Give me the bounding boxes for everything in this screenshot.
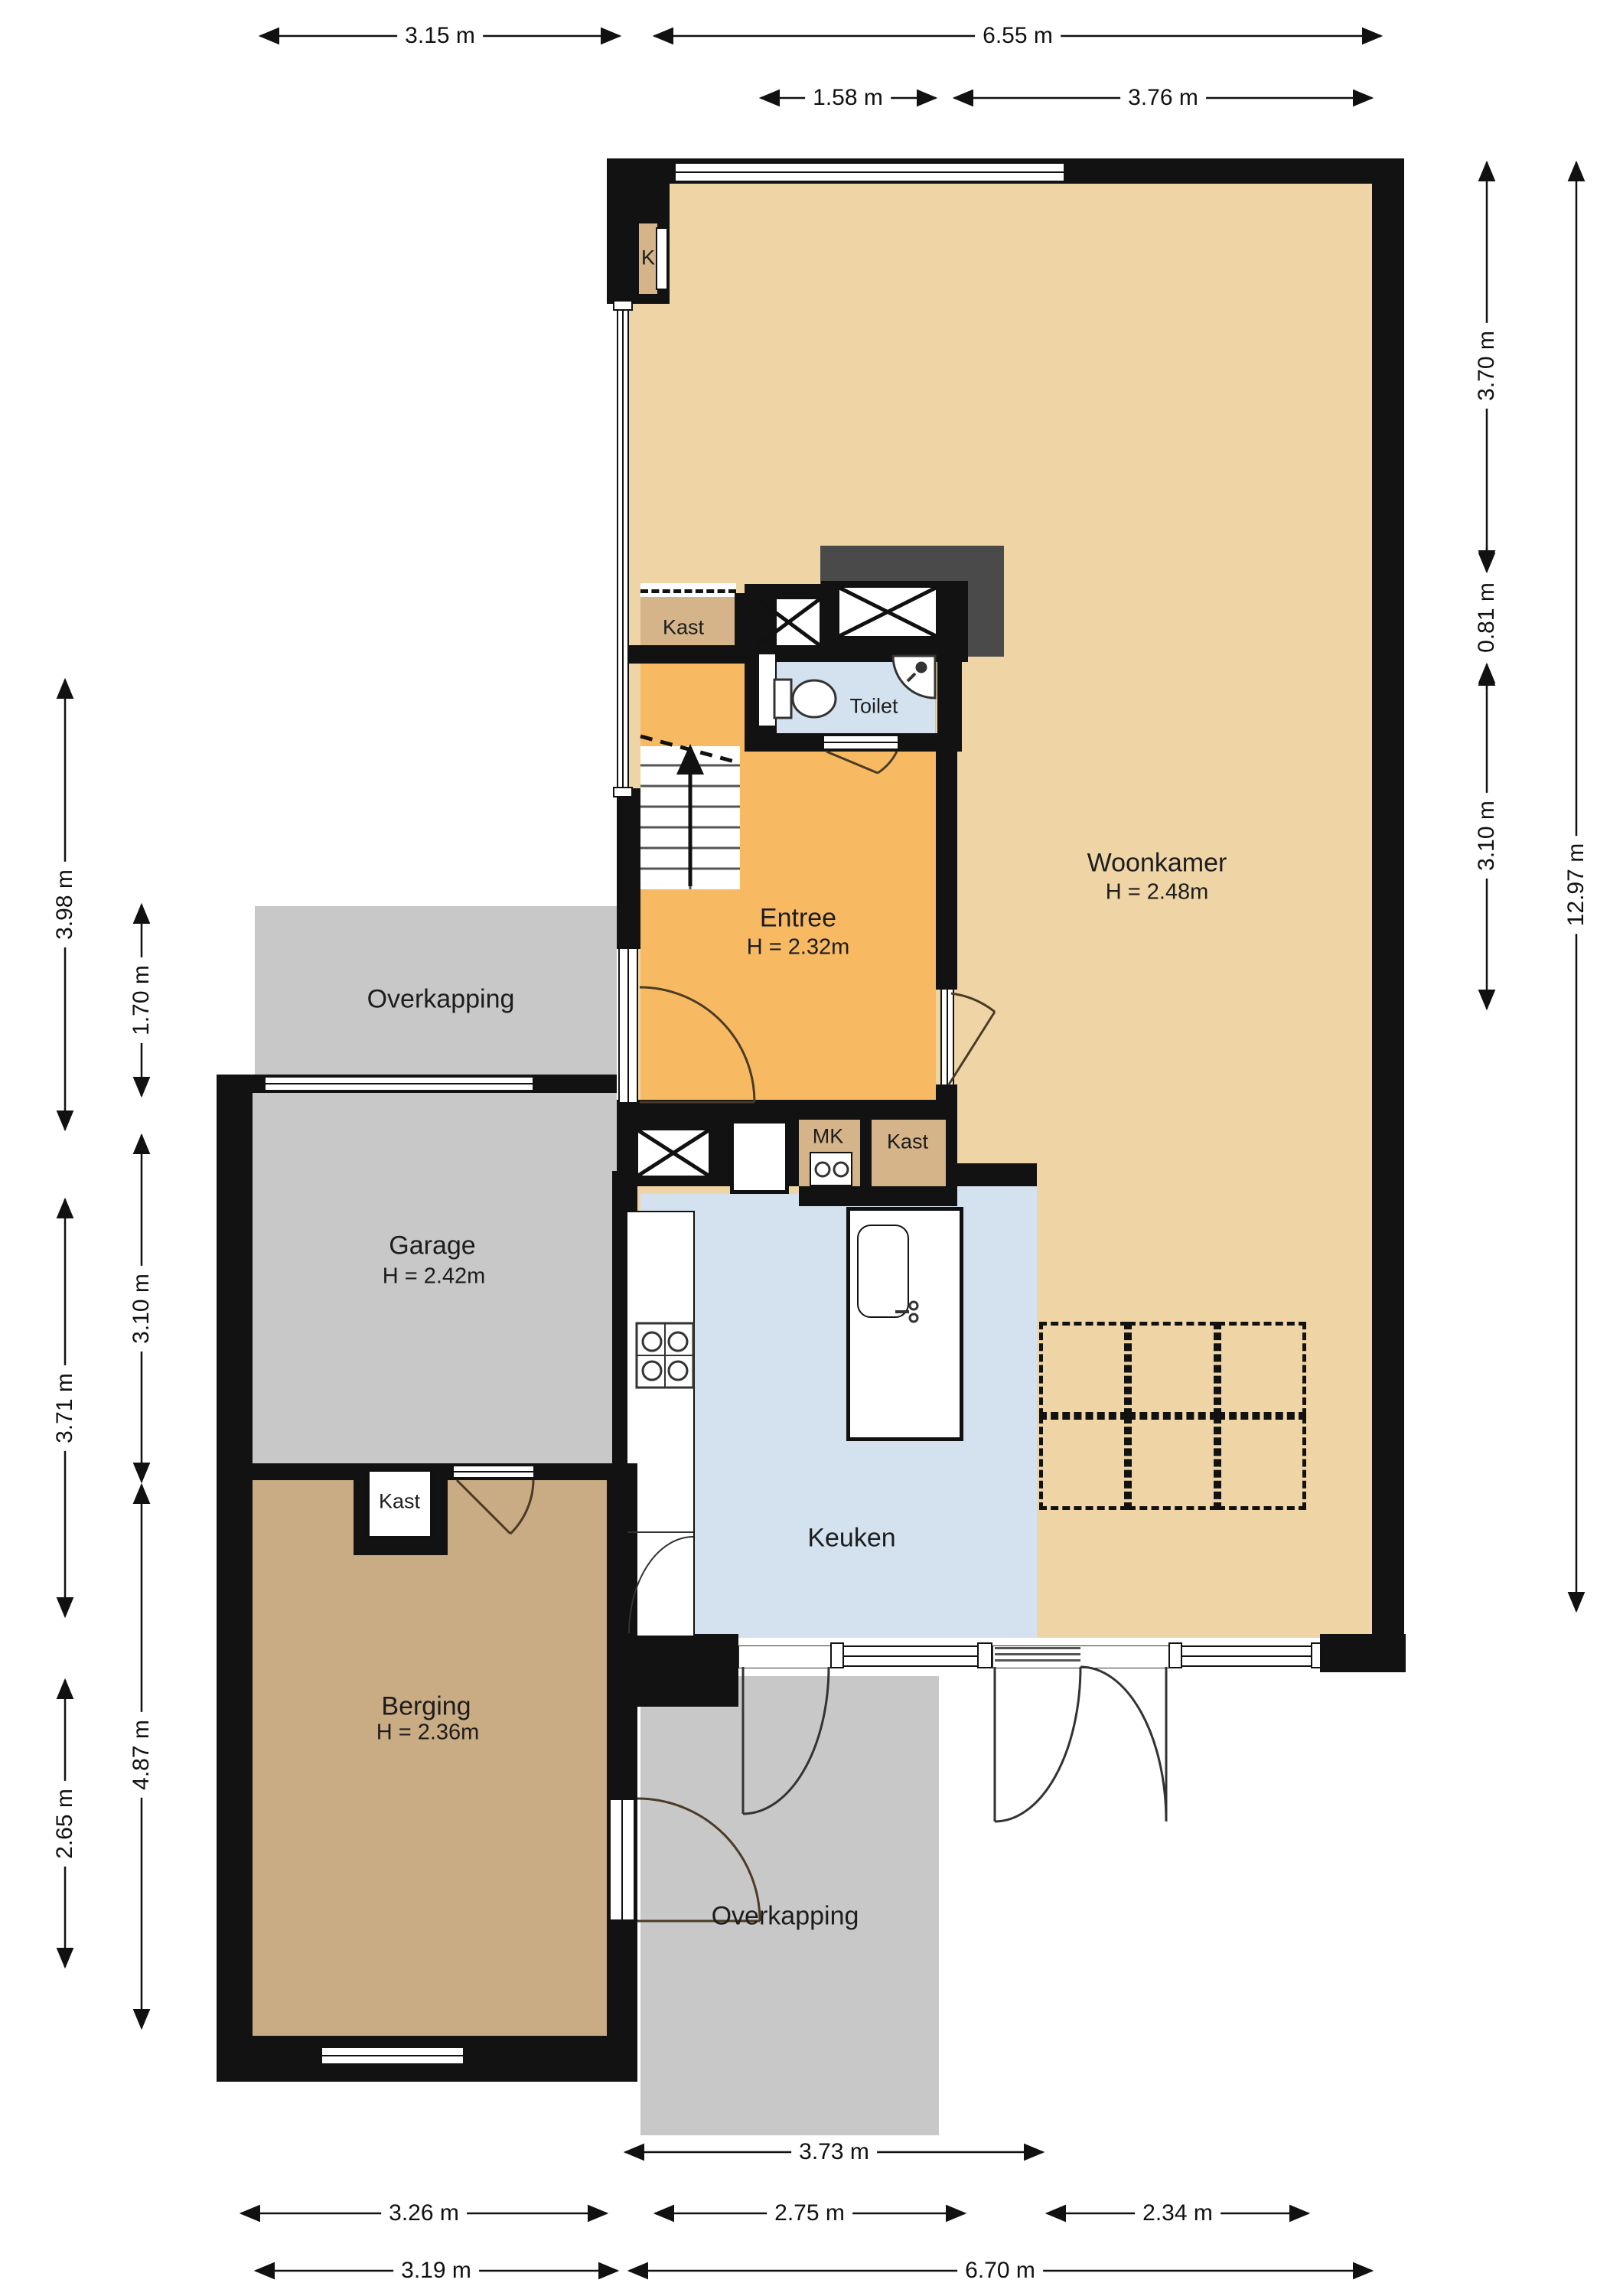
door-garage-berging-threshold: [454, 1465, 533, 1479]
window-berging-south: [322, 2047, 463, 2065]
kast-hal-dashed-edge: [640, 589, 736, 593]
table-cell: [1039, 1416, 1128, 1510]
dim-right-3: 3.10 m: [1474, 793, 1500, 879]
kitchen-door-opening: [738, 1645, 832, 1668]
dim-right-4: 12.97 m: [1563, 836, 1589, 934]
dim-right-2: 0.81 m: [1474, 575, 1500, 660]
woonkamer-door-leaf-closed: [940, 990, 954, 1084]
window-west-post-bottom: [613, 787, 633, 797]
facade-post-3: [1168, 1642, 1182, 1668]
shaft3-box: [637, 1129, 710, 1177]
room-height-entree: H = 2.32m: [747, 934, 850, 960]
room-label-keuken: Keuken: [807, 1523, 895, 1553]
room-label-entree: Entree: [760, 903, 836, 933]
dim-left-5: 3.10 m: [129, 1266, 155, 1352]
facade-post-2: [977, 1642, 992, 1668]
window-west: [617, 306, 629, 788]
wall-berging-east: [607, 1463, 637, 2036]
dim-bottom-2: 3.26 m: [381, 2200, 467, 2226]
toilet-wall-niche: [759, 654, 775, 726]
room-label-toilet: Toilet: [849, 694, 898, 718]
front-door: [618, 949, 638, 1102]
room-height-garage: H = 2.42m: [383, 1264, 486, 1289]
wall-entree-east-upper: [936, 752, 957, 990]
dim-bottom-5: 3.19 m: [393, 2258, 479, 2284]
sep-wall-2: [789, 1120, 799, 1186]
table-cell: [1217, 1322, 1306, 1416]
table-cell: [1128, 1416, 1217, 1510]
door-berging-east: [609, 1800, 635, 1919]
floorplan-canvas: Woonkamer H = 2.48m Entree H = 2.32m Toi…: [0, 0, 1623, 2296]
wall-garage-west: [217, 1075, 253, 2082]
room-label-woonkamer: Woonkamer: [1087, 848, 1227, 878]
shaft2-box: [838, 586, 937, 638]
facade-post-1: [830, 1642, 844, 1668]
room-label-overkapping-boven: Overkapping: [367, 984, 515, 1014]
label-kast-hal: Kast: [663, 615, 704, 639]
wall-under-mk: [799, 1186, 957, 1206]
table-cell: [1039, 1322, 1128, 1416]
dim-bottom-6: 6.70 m: [957, 2258, 1043, 2284]
mk-fixture: [810, 1152, 852, 1186]
dim-bottom-3: 2.75 m: [767, 2200, 852, 2226]
wall-east: [1372, 158, 1404, 1672]
kast-k-door: [656, 227, 668, 290]
dim-top-4: 3.76 m: [1120, 85, 1206, 111]
window-top: [676, 162, 1064, 182]
table-cell: [1217, 1416, 1306, 1510]
label-kast-entree: Kast: [887, 1130, 928, 1153]
label-kast-berging: Kast: [379, 1489, 420, 1513]
dim-left-3: 2.65 m: [52, 1781, 78, 1867]
room-height-berging: H = 2.36m: [376, 1720, 480, 1745]
room-label-berging: Berging: [381, 1691, 471, 1721]
sep-wall-1: [719, 1120, 730, 1186]
dim-right-1: 3.70 m: [1474, 323, 1500, 409]
toilet-door-threshold: [824, 735, 898, 750]
dim-top-2: 6.55 m: [975, 23, 1061, 49]
label-mk: MK: [813, 1124, 844, 1148]
keuken-floor-strip: [957, 1186, 1037, 1209]
window-south-2: [1182, 1645, 1311, 1667]
french-doors-threshold: [995, 1647, 1080, 1665]
dim-top-1: 3.15 m: [397, 23, 483, 49]
wall-west-upper: [617, 788, 640, 949]
dim-left-2: 3.71 m: [52, 1365, 78, 1451]
window-garage-north: [266, 1076, 533, 1091]
room-label-garage: Garage: [389, 1231, 475, 1261]
berging-floor: [253, 1480, 607, 2036]
sep-wall-4: [946, 1120, 957, 1186]
table-cell: [1128, 1322, 1217, 1416]
dim-bottom-1: 3.73 m: [791, 2139, 877, 2165]
wall-se-corner-block: [1320, 1634, 1406, 1672]
dim-bottom-4: 2.34 m: [1135, 2200, 1221, 2226]
wall-entree-south: [617, 1100, 957, 1120]
dim-top-3: 1.58 m: [805, 85, 891, 111]
wall-kitchen-north-east: [957, 1163, 1037, 1186]
window-south-1: [844, 1645, 977, 1667]
window-west-post-top: [613, 300, 633, 311]
dim-left-6: 4.87 m: [129, 1712, 155, 1798]
appliance-box: [730, 1120, 789, 1194]
room-label-overkapping-onder: Overkapping: [712, 1901, 859, 1931]
facade-post-4: [1311, 1642, 1322, 1668]
dim-left-4: 1.70 m: [129, 957, 155, 1043]
room-height-woonkamer: H = 2.48m: [1106, 879, 1209, 905]
stairs: [640, 746, 740, 889]
sep-wall-3: [860, 1120, 872, 1186]
island-sink: [857, 1225, 909, 1318]
dim-left-1: 3.98 m: [52, 862, 78, 947]
keuken-floor: [640, 1194, 1037, 1638]
label-kast-k: K: [641, 246, 655, 269]
